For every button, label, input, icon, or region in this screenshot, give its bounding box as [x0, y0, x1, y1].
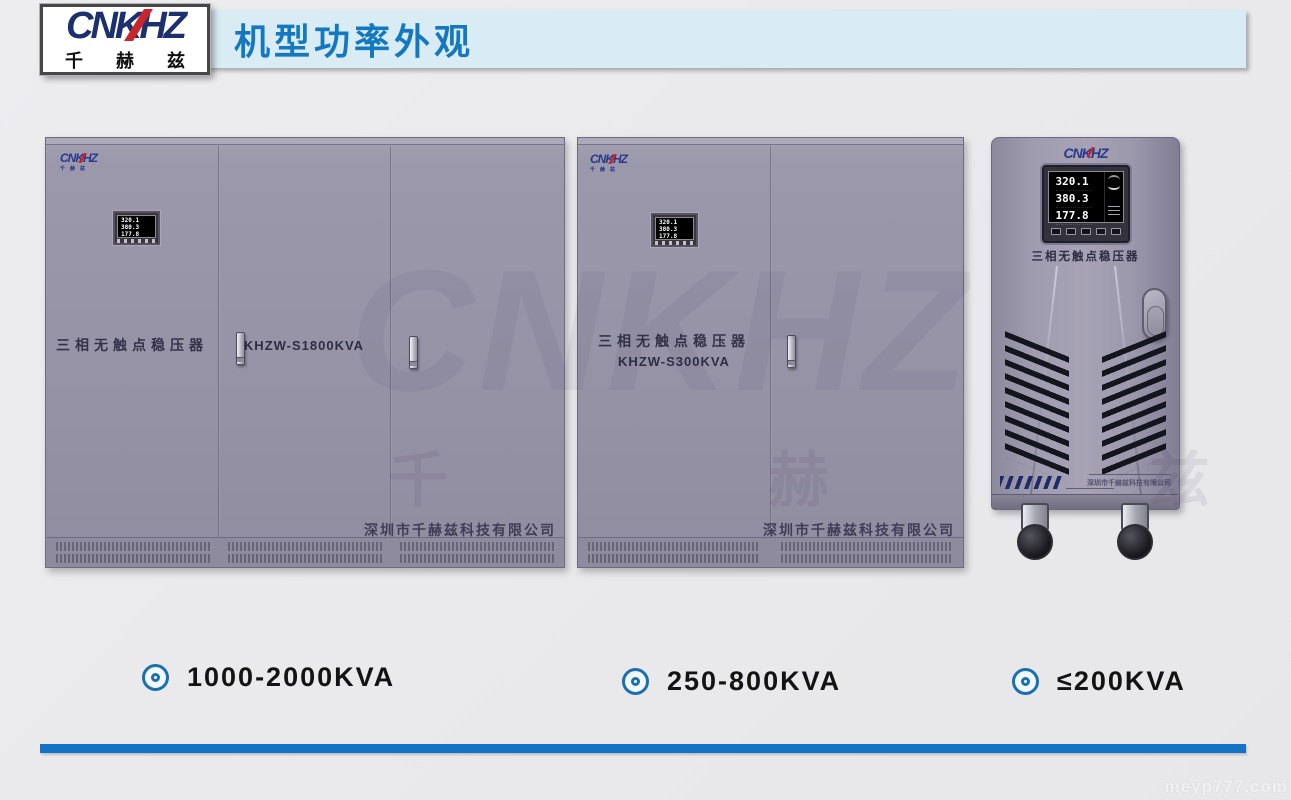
- meter-row: 177.8: [659, 233, 693, 240]
- meter-buttons: [117, 239, 156, 243]
- company-name-label: 深圳市千赫兹科技有限公司: [1087, 478, 1171, 488]
- panel-button: [1066, 228, 1076, 235]
- waveform-icon: [1108, 182, 1120, 190]
- tower-body: CNKHZ 320.1 380.3 177.8: [991, 137, 1180, 510]
- door-handle: [409, 336, 418, 369]
- diagonal-vent-right: [1102, 331, 1166, 483]
- vent-grille: [56, 542, 210, 551]
- slide-background: CNKHZ 千 赫 兹 机型功率外观 CNKHZ 千赫兹 320.1 380.3…: [0, 0, 1291, 800]
- bullet-inner-ring: [151, 673, 160, 682]
- voltage-meter-display: 320.1 380.3 177.8: [651, 213, 698, 247]
- power-range-item: ≤200KVA: [1012, 666, 1186, 697]
- panel-button: [1111, 228, 1121, 235]
- power-range-label: ≤200KVA: [1057, 666, 1186, 697]
- site-watermark: meyp777.com: [1165, 777, 1288, 797]
- panel-buttons: [1048, 228, 1124, 235]
- vent-row: [56, 542, 554, 551]
- meter-buttons: [655, 241, 694, 245]
- meter-row: 320.1: [1056, 174, 1092, 191]
- panel-button: [1081, 228, 1091, 235]
- bullseye-bullet-icon: [142, 664, 169, 691]
- bullet-inner-ring: [1021, 677, 1030, 686]
- product-name-label: 三相无触点稳压器: [992, 248, 1179, 264]
- cabinet-brand-logo: CNKHZ 千赫兹: [590, 151, 627, 173]
- meter-screen: 320.1 380.3 177.8: [655, 217, 694, 240]
- decor-stripes: [1000, 476, 1062, 489]
- vent-grille: [400, 542, 554, 551]
- cabinet-top-edge: [578, 138, 963, 145]
- page-title: 机型功率外观: [234, 13, 474, 65]
- vent-grille: [781, 554, 953, 563]
- brand-wordmark: CNKHZ: [60, 152, 97, 164]
- meter-row: 380.3: [1056, 191, 1092, 208]
- product-name-label: 三相无触点稳压器: [46, 335, 218, 355]
- meter-row: 177.8: [121, 231, 155, 238]
- vent-grille: [228, 554, 382, 563]
- meter-digits: 320.1 380.3 177.8: [1049, 172, 1104, 222]
- power-range-label: 1000-2000KVA: [187, 662, 395, 693]
- cabinet-base-vents: [46, 537, 564, 567]
- brand-wordmark: CNKHZ: [590, 153, 627, 165]
- bullseye-bullet-icon: [1012, 668, 1039, 695]
- brand-wordmark: CNKHZ: [1064, 146, 1108, 160]
- door-handle: [787, 335, 796, 368]
- product-model-label: KHZW-S300KVA: [578, 354, 770, 369]
- caster-tyre: [1017, 524, 1053, 560]
- product-name-label: 三相无触点稳压器: [578, 331, 770, 351]
- vent-grille: [228, 542, 382, 551]
- cabinet-base-vents: [578, 537, 963, 567]
- header-bar: 机型功率外观: [206, 10, 1246, 68]
- cabinet-top-edge: [46, 138, 564, 145]
- logo-wordmark: CNKHZ: [66, 7, 184, 45]
- power-range-item: 250-800KVA: [622, 666, 841, 697]
- company-logo: CNKHZ 千 赫 兹: [40, 4, 210, 75]
- control-panel-display: 320.1 380.3 177.8: [1042, 165, 1130, 243]
- vent-grille: [588, 542, 760, 551]
- caster-wheel: [1009, 503, 1061, 565]
- decor-line: [1089, 474, 1171, 475]
- product-tower-small: CNKHZ 320.1 380.3 177.8: [991, 137, 1180, 567]
- meter-row: 380.3: [659, 226, 693, 233]
- vent-row: [588, 554, 953, 563]
- logo-chinese-name: 千 赫 兹: [51, 47, 199, 73]
- brand-chinese: 千赫兹: [60, 167, 97, 172]
- power-range-item: 1000-2000KVA: [142, 662, 395, 693]
- panel-button: [1096, 228, 1106, 235]
- meter-row: 320.1: [121, 217, 155, 224]
- product-cabinet-large: CNKHZ 千赫兹 320.1 380.3 177.8 三相无触点稳压器 KHZ…: [45, 137, 565, 568]
- vent-row: [56, 554, 554, 563]
- vent-grille: [781, 542, 953, 551]
- meter-row: 380.3: [121, 224, 155, 231]
- door-seam: [390, 146, 392, 537]
- meter-row: 177.8: [1056, 208, 1092, 225]
- product-cabinet-medium: CNKHZ 千赫兹 320.1 380.3 177.8 三相无触点稳压器 KHZ…: [577, 137, 964, 568]
- vent-grille: [400, 554, 554, 563]
- vent-row: [588, 542, 953, 551]
- panel-button: [1051, 228, 1061, 235]
- vent-grille: [588, 554, 760, 563]
- meter-side-panel: [1104, 172, 1123, 222]
- caster-wheel: [1109, 503, 1161, 565]
- diagonal-vent-left: [1005, 331, 1069, 483]
- caster-tyre: [1117, 524, 1153, 560]
- brand-chinese: 千赫兹: [590, 168, 627, 173]
- meter-screen: 320.1 380.3 177.8: [1048, 171, 1124, 223]
- meter-screen: 320.1 380.3 177.8: [117, 215, 156, 238]
- cabinet-brand-logo: CNKHZ 千赫兹: [60, 150, 97, 172]
- bullseye-bullet-icon: [622, 668, 649, 695]
- tower-brand-logo: CNKHZ: [992, 146, 1179, 162]
- power-range-label: 250-800KVA: [667, 666, 841, 697]
- meter-row: 320.1: [659, 219, 693, 226]
- door-handle: [236, 332, 245, 365]
- signal-bars-icon: [1108, 206, 1120, 216]
- decor-line: [1066, 488, 1114, 489]
- voltage-meter-display: 320.1 380.3 177.8: [113, 211, 160, 245]
- bullet-inner-ring: [631, 677, 640, 686]
- vent-grille: [56, 554, 210, 563]
- door-seam: [770, 146, 772, 537]
- footer-divider-line: [40, 744, 1246, 753]
